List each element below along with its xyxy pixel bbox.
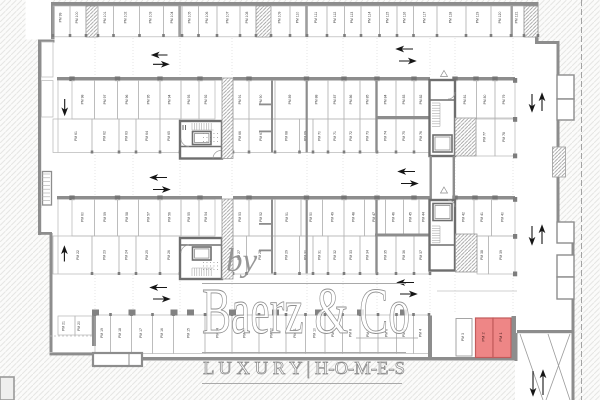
svg-text:PM 50: PM 50 bbox=[309, 212, 313, 222]
svg-text:PM 18: PM 18 bbox=[118, 328, 122, 338]
svg-text:PM 1: PM 1 bbox=[498, 332, 503, 342]
svg-text:PM 46: PM 46 bbox=[392, 212, 396, 222]
svg-text:PM 119: PM 119 bbox=[476, 12, 480, 24]
svg-text:PM 99: PM 99 bbox=[59, 12, 63, 22]
svg-text:Baerz & Co: Baerz & Co bbox=[202, 275, 410, 348]
svg-text:PM 44: PM 44 bbox=[422, 212, 426, 222]
svg-text:PM 74: PM 74 bbox=[384, 131, 388, 141]
svg-text:PM 120: PM 120 bbox=[498, 12, 502, 24]
svg-text:PM 54: PM 54 bbox=[204, 212, 208, 222]
svg-text:PM 79: PM 79 bbox=[502, 94, 506, 104]
svg-text:PM 103: PM 103 bbox=[149, 12, 153, 24]
svg-text:PM 37: PM 37 bbox=[419, 250, 423, 260]
svg-text:PM 110: PM 110 bbox=[296, 12, 300, 24]
svg-text:PM 39: PM 39 bbox=[499, 250, 503, 260]
svg-text:PM 4: PM 4 bbox=[418, 329, 422, 337]
svg-text:PM 72: PM 72 bbox=[349, 131, 353, 141]
svg-text:PM 84: PM 84 bbox=[384, 94, 388, 104]
svg-text:PM 25: PM 25 bbox=[145, 250, 149, 260]
svg-text:PM 91: PM 91 bbox=[238, 94, 242, 104]
svg-text:PM 56: PM 56 bbox=[168, 212, 172, 222]
svg-text:PM 109: PM 109 bbox=[278, 12, 282, 24]
svg-text:PM 24: PM 24 bbox=[125, 250, 129, 260]
svg-text:PM 76: PM 76 bbox=[419, 131, 423, 141]
svg-text:PM 66: PM 66 bbox=[238, 131, 242, 141]
svg-text:PM 104: PM 104 bbox=[170, 12, 174, 24]
svg-text:PM 20: PM 20 bbox=[77, 321, 81, 331]
svg-text:PM 63: PM 63 bbox=[125, 131, 129, 141]
svg-text:PM 107: PM 107 bbox=[226, 12, 230, 24]
svg-text:PM 26: PM 26 bbox=[167, 250, 171, 260]
svg-text:PM 117: PM 117 bbox=[422, 12, 426, 24]
svg-text:PM 19: PM 19 bbox=[100, 328, 104, 338]
svg-text:PM 86: PM 86 bbox=[349, 94, 353, 104]
svg-text:by: by bbox=[226, 243, 258, 279]
svg-text:PM 40: PM 40 bbox=[500, 212, 504, 222]
svg-text:PM 95: PM 95 bbox=[146, 94, 150, 104]
svg-text:PM 28: PM 28 bbox=[258, 250, 262, 260]
svg-text:PM 45: PM 45 bbox=[408, 212, 412, 222]
svg-text:PM 75: PM 75 bbox=[402, 131, 406, 141]
svg-text:PM 71: PM 71 bbox=[333, 131, 337, 141]
svg-text:PM 34: PM 34 bbox=[366, 250, 370, 260]
svg-text:PM 114: PM 114 bbox=[367, 12, 371, 24]
svg-text:PM 92: PM 92 bbox=[204, 94, 208, 104]
svg-text:PM 77: PM 77 bbox=[483, 132, 487, 142]
svg-text:PM 82: PM 82 bbox=[419, 94, 423, 104]
svg-text:PM 100: PM 100 bbox=[75, 12, 79, 24]
svg-text:PM 105: PM 105 bbox=[187, 12, 191, 24]
svg-text:PM 53: PM 53 bbox=[238, 212, 242, 222]
svg-text:PM 78: PM 78 bbox=[502, 132, 506, 142]
svg-text:PM 90: PM 90 bbox=[259, 94, 263, 104]
svg-text:PM 2: PM 2 bbox=[481, 332, 486, 342]
svg-text:PM 16: PM 16 bbox=[160, 328, 164, 338]
svg-text:PM 94: PM 94 bbox=[168, 94, 172, 104]
svg-text:PM 22: PM 22 bbox=[76, 250, 80, 260]
svg-text:PM 121: PM 121 bbox=[515, 12, 519, 24]
svg-text:PM 111: PM 111 bbox=[314, 12, 318, 23]
svg-text:PM 21: PM 21 bbox=[62, 321, 66, 331]
svg-text:PM 58: PM 58 bbox=[125, 212, 129, 222]
svg-text:PM 102: PM 102 bbox=[124, 12, 128, 24]
svg-text:PM 106: PM 106 bbox=[205, 12, 209, 24]
svg-text:PM 101: PM 101 bbox=[103, 12, 107, 24]
svg-text:PM 48: PM 48 bbox=[351, 212, 355, 222]
svg-text:PM 62: PM 62 bbox=[103, 131, 107, 141]
svg-text:PM 97: PM 97 bbox=[103, 94, 107, 104]
svg-text:PM 60: PM 60 bbox=[80, 212, 84, 222]
svg-text:PM 96: PM 96 bbox=[125, 94, 129, 104]
svg-text:PM 59: PM 59 bbox=[103, 212, 107, 222]
svg-text:PM 118: PM 118 bbox=[449, 12, 453, 24]
svg-text:PM 55: PM 55 bbox=[187, 212, 191, 222]
svg-text:PM 38: PM 38 bbox=[480, 250, 484, 260]
svg-text:PM 80: PM 80 bbox=[483, 94, 487, 104]
svg-text:PM 112: PM 112 bbox=[333, 12, 337, 24]
svg-text:PM 57: PM 57 bbox=[146, 212, 150, 222]
svg-text:PM 33: PM 33 bbox=[349, 250, 353, 260]
svg-text:PM 87: PM 87 bbox=[333, 94, 337, 104]
svg-text:PM 98: PM 98 bbox=[80, 94, 84, 104]
svg-text:PM 116: PM 116 bbox=[402, 12, 406, 24]
svg-text:PM 67: PM 67 bbox=[259, 131, 263, 141]
svg-text:PM 115: PM 115 bbox=[385, 12, 389, 24]
svg-text:PM 3: PM 3 bbox=[461, 333, 465, 341]
svg-text:PM 68: PM 68 bbox=[284, 131, 288, 141]
svg-text:PM 41: PM 41 bbox=[480, 212, 484, 222]
svg-text:PM 93: PM 93 bbox=[187, 94, 191, 104]
svg-text:PM 83: PM 83 bbox=[402, 94, 406, 104]
svg-text:PM 29: PM 29 bbox=[284, 250, 288, 260]
svg-text:PM 42: PM 42 bbox=[462, 212, 466, 222]
svg-text:PM 70: PM 70 bbox=[318, 131, 322, 141]
svg-text:PM 113: PM 113 bbox=[350, 12, 354, 24]
svg-text:PM 64: PM 64 bbox=[145, 131, 149, 141]
svg-text:PM 23: PM 23 bbox=[103, 250, 107, 260]
svg-text:L U X U R Y | H-O-M-E-S: L U X U R Y | H-O-M-E-S bbox=[203, 358, 405, 378]
svg-text:PM 61: PM 61 bbox=[74, 131, 78, 141]
svg-text:PM 108: PM 108 bbox=[245, 12, 249, 24]
svg-text:PM 89: PM 89 bbox=[288, 94, 292, 104]
svg-text:PM 35: PM 35 bbox=[384, 250, 388, 260]
svg-text:PM 88: PM 88 bbox=[314, 94, 318, 104]
svg-text:PM 85: PM 85 bbox=[366, 94, 370, 104]
svg-text:PM 52: PM 52 bbox=[259, 212, 263, 222]
svg-text:PM 31: PM 31 bbox=[318, 250, 322, 260]
svg-text:PM 81: PM 81 bbox=[463, 94, 467, 104]
svg-text:PM 51: PM 51 bbox=[285, 212, 289, 222]
svg-text:PM 65: PM 65 bbox=[167, 131, 171, 141]
svg-text:PM 15: PM 15 bbox=[186, 328, 190, 338]
svg-text:PM 73: PM 73 bbox=[366, 131, 370, 141]
svg-text:PM 49: PM 49 bbox=[330, 212, 334, 222]
svg-text:PM 36: PM 36 bbox=[402, 250, 406, 260]
svg-text:PM 32: PM 32 bbox=[333, 250, 337, 260]
svg-text:PM 17: PM 17 bbox=[139, 328, 143, 338]
